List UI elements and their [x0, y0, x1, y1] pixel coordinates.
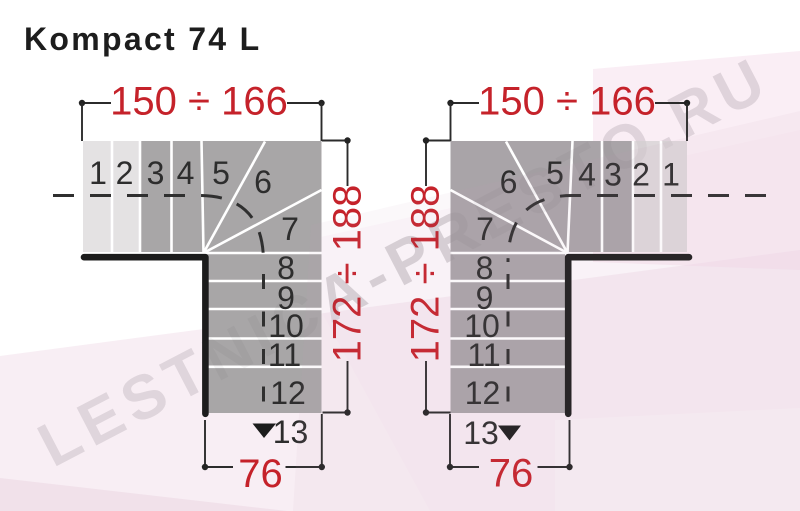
svg-text:Kompact 74 L: Kompact 74 L	[24, 21, 261, 57]
svg-text:5: 5	[212, 155, 230, 191]
svg-text:2: 2	[116, 155, 134, 191]
svg-text:150 ÷ 166: 150 ÷ 166	[110, 80, 288, 124]
svg-text:1: 1	[89, 155, 107, 191]
svg-text:7: 7	[281, 211, 299, 247]
svg-text:6: 6	[254, 164, 272, 200]
svg-text:4: 4	[177, 155, 195, 191]
svg-text:76: 76	[238, 452, 283, 496]
svg-text:3: 3	[147, 155, 165, 191]
